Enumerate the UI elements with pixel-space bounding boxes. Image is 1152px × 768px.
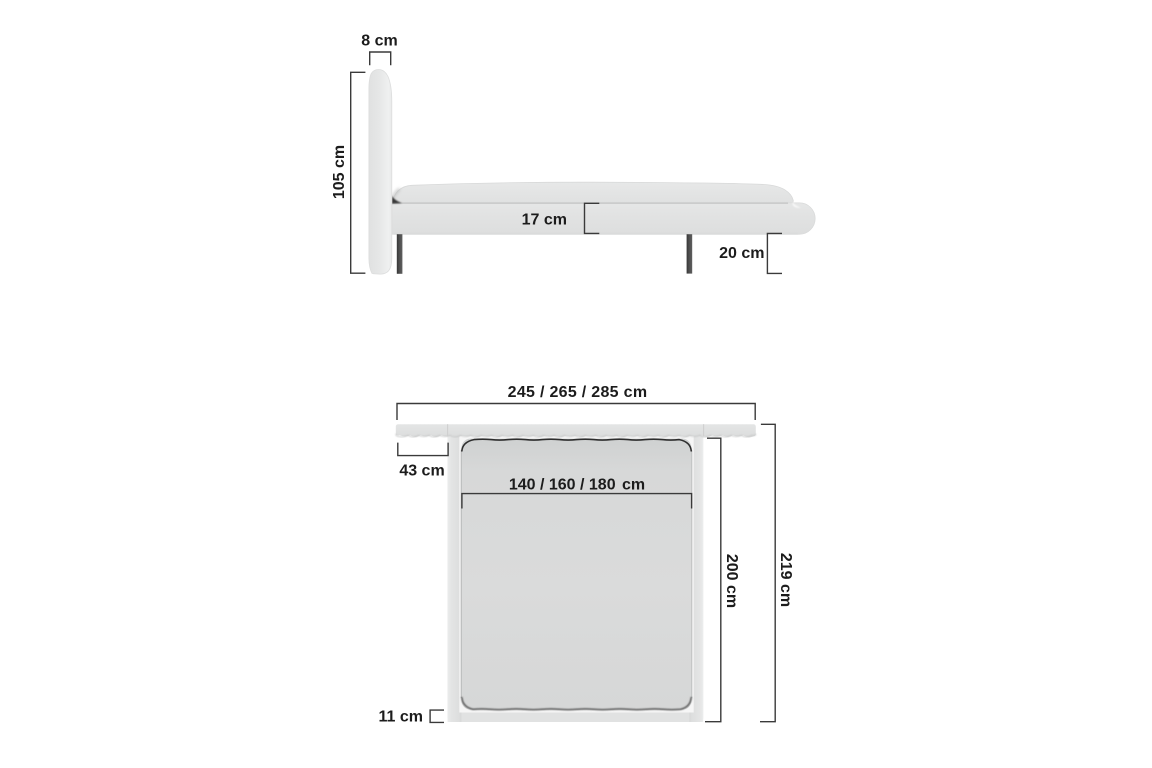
svg-text:8 cm: 8 cm <box>361 33 397 50</box>
svg-text:105 cm: 105 cm <box>331 145 348 199</box>
svg-text:17 cm: 17 cm <box>522 212 567 229</box>
svg-text:43 cm: 43 cm <box>399 462 444 479</box>
svg-text:140 / 160 / 180 cm: 140 / 160 / 180 cm <box>509 476 645 493</box>
svg-text:219 cm: 219 cm <box>777 553 794 607</box>
svg-text:11 cm: 11 cm <box>379 708 423 725</box>
svg-text:20 cm: 20 cm <box>719 245 764 262</box>
svg-text:245 / 265 / 285 cm: 245 / 265 / 285 cm <box>508 384 648 401</box>
svg-text:200 cm: 200 cm <box>723 554 740 608</box>
